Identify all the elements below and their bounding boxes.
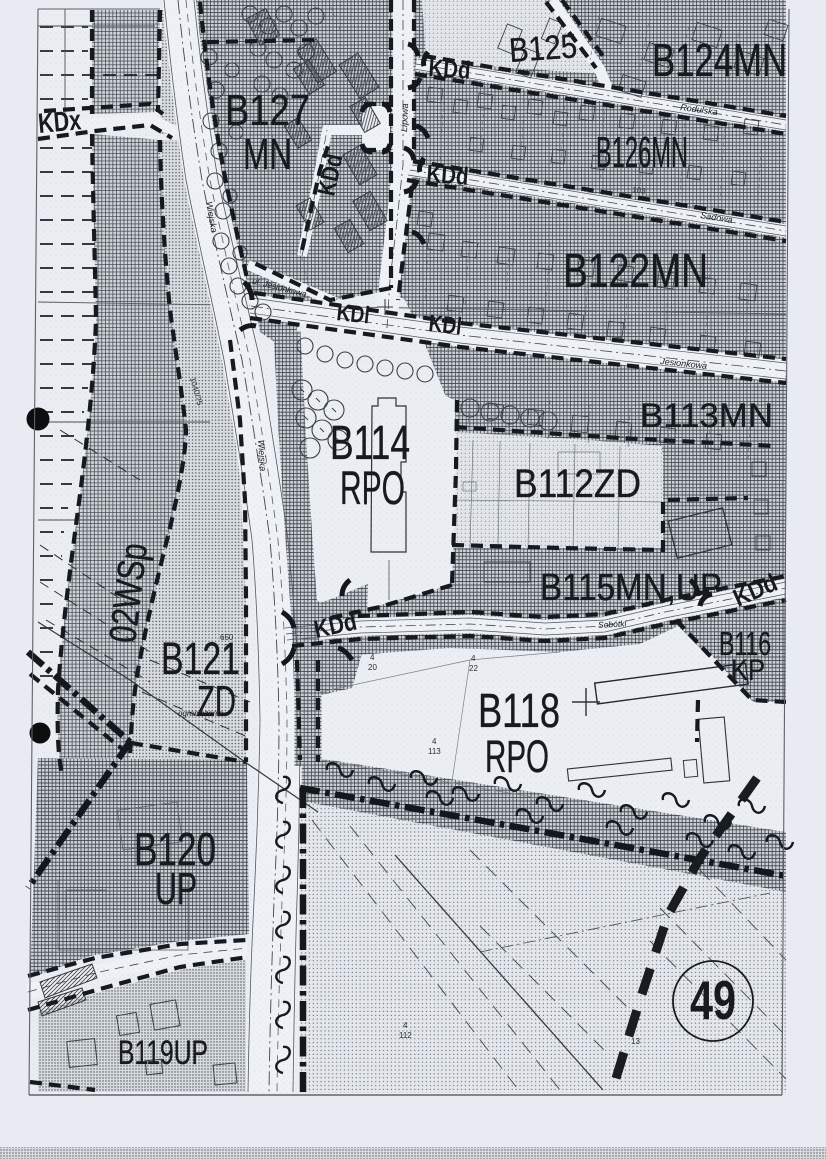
- svg-text:UP: UP: [155, 863, 197, 914]
- svg-text:Lipowa: Lipowa: [399, 103, 410, 132]
- svg-text:KDl: KDl: [427, 310, 463, 340]
- svg-text:650: 650: [220, 633, 234, 642]
- svg-text:22: 22: [469, 664, 478, 673]
- svg-text:KDl: KDl: [335, 299, 371, 329]
- svg-text:49: 49: [690, 969, 736, 1031]
- svg-text:KDd: KDd: [428, 54, 472, 85]
- svg-text:113: 113: [428, 747, 441, 756]
- svg-text:ograniczenie: ograniczenie: [178, 709, 224, 718]
- svg-text:B127: B127: [225, 86, 310, 135]
- svg-text:B113MN: B113MN: [640, 397, 773, 435]
- svg-text:103: 103: [632, 185, 647, 196]
- svg-text:4: 4: [403, 1021, 408, 1030]
- svg-text:KDd: KDd: [426, 160, 470, 191]
- svg-text:4: 4: [432, 737, 437, 746]
- svg-text:4: 4: [471, 654, 476, 663]
- svg-text:B124MN: B124MN: [652, 34, 787, 86]
- svg-text:KDx: KDx: [37, 104, 83, 139]
- svg-text:B115MN,UP: B115MN,UP: [540, 567, 722, 609]
- svg-text:112: 112: [399, 1031, 412, 1040]
- svg-text:B125: B125: [508, 27, 578, 70]
- svg-text:RPO: RPO: [485, 731, 549, 782]
- svg-text:B112ZD: B112ZD: [514, 462, 641, 506]
- svg-text:KP: KP: [731, 654, 765, 687]
- svg-text:20: 20: [368, 663, 377, 672]
- svg-text:B126MN: B126MN: [596, 128, 688, 177]
- svg-text:Sobótki: Sobótki: [598, 618, 628, 630]
- svg-text:MN: MN: [243, 130, 292, 179]
- svg-text:4: 4: [370, 653, 375, 662]
- svg-text:13: 13: [631, 1037, 640, 1046]
- svg-text:B119UP: B119UP: [118, 1034, 208, 1072]
- svg-text:B122MN: B122MN: [563, 245, 708, 298]
- svg-text:RPO: RPO: [340, 461, 405, 514]
- svg-text:ZD: ZD: [197, 677, 236, 726]
- svg-text:3: 3: [224, 643, 229, 652]
